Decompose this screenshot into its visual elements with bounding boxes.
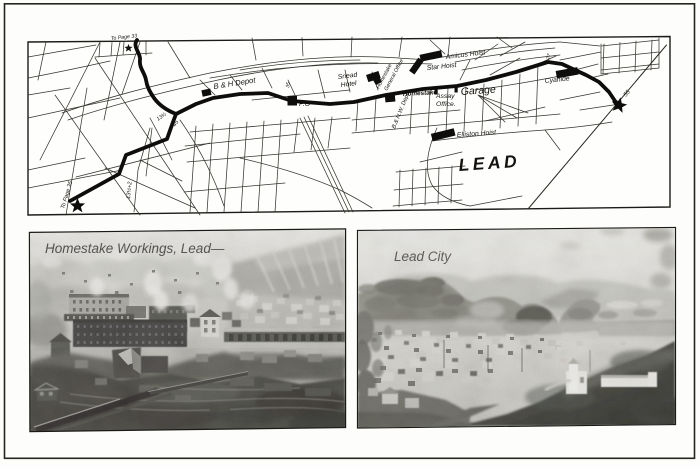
svg-text:Assay: Assay (435, 93, 455, 100)
svg-text:P.O: P.O (299, 101, 311, 108)
svg-text:Office.: Office. (436, 101, 456, 108)
svg-text:Garage: Garage (460, 84, 496, 98)
